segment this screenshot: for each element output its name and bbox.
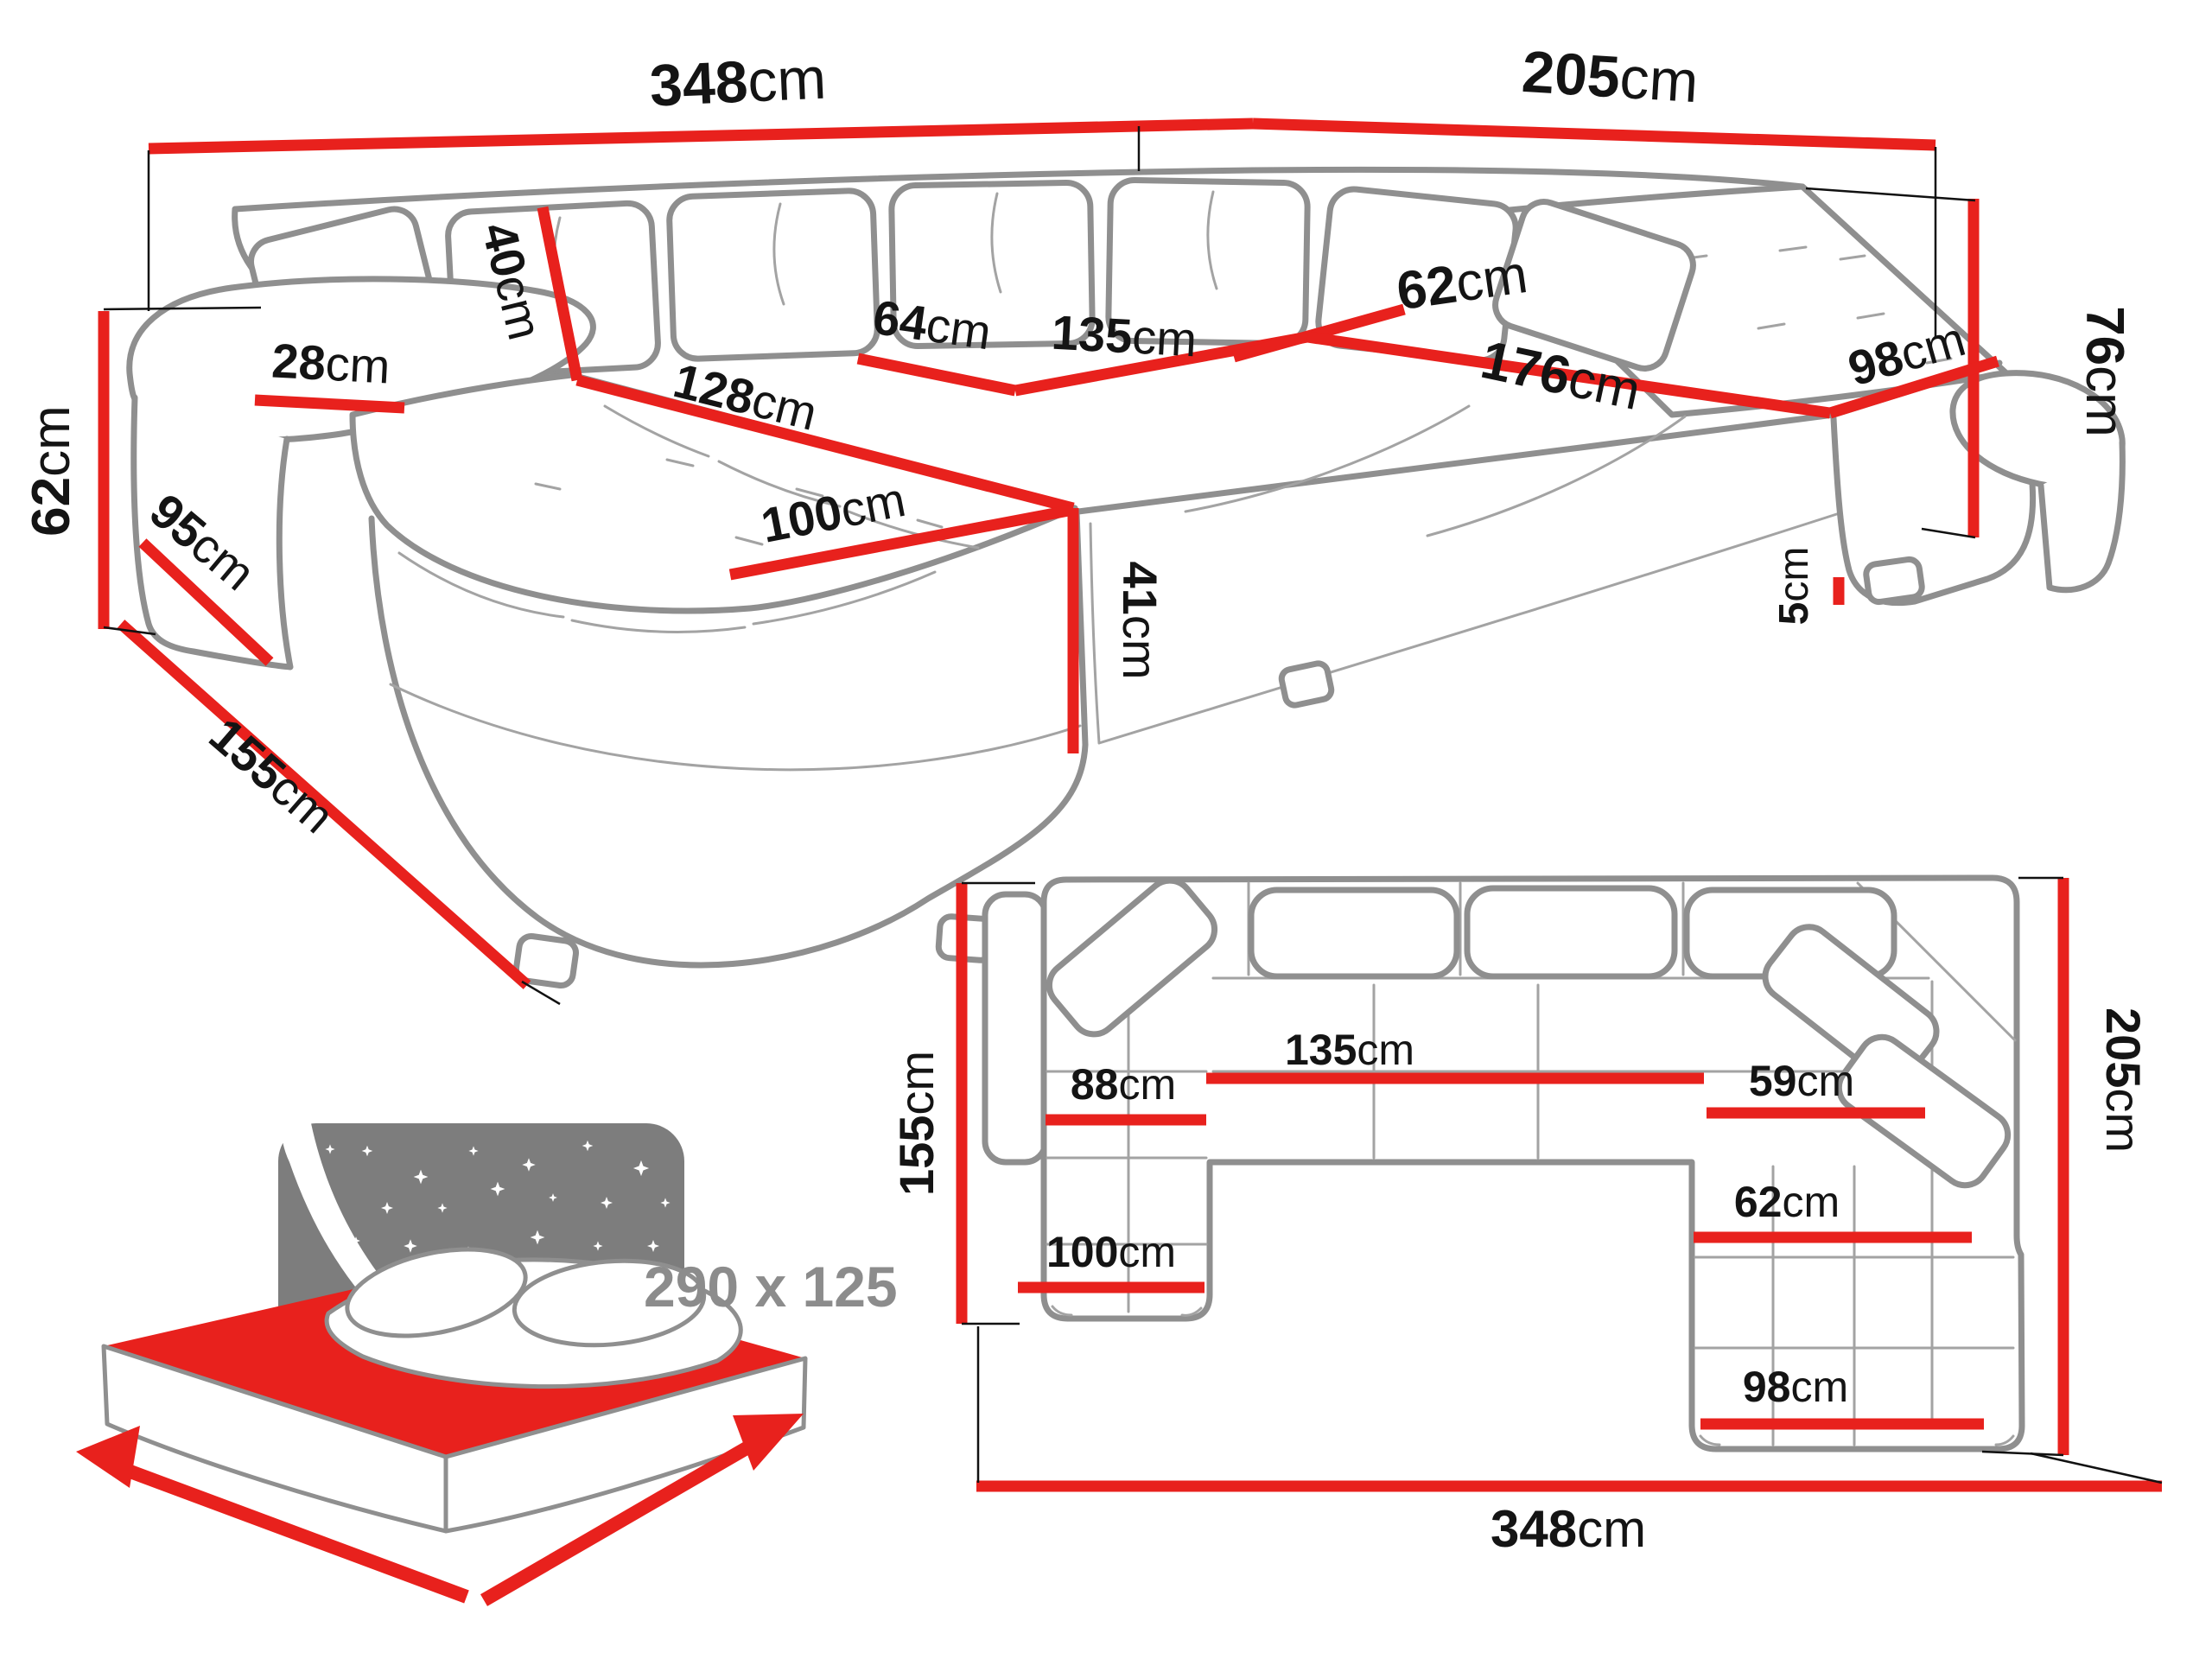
dim-arm-height-label: 62cm bbox=[22, 405, 81, 537]
dim-middle-seat-label: 135cm bbox=[1050, 305, 1198, 367]
dim-seat-height-label: 41cm bbox=[1113, 562, 1167, 680]
product-dimension-diagram: 348cm 205cm 76cm 62cm 28cm 95cm 155cm 40… bbox=[0, 0, 2212, 1659]
dim-armrest-width-label: 28cm bbox=[270, 333, 391, 393]
sleeping-size-label: 290 x 125 bbox=[644, 1255, 898, 1319]
plan-side-depth-label: 205cm bbox=[2096, 1007, 2151, 1153]
plan-view: 155cm 88cm 135cm 59cm 62cm 100cm 98cm 20… bbox=[889, 871, 2162, 1558]
dim-back-width-label: 348cm bbox=[648, 46, 827, 119]
sleeper-icon: 290 x 125 bbox=[76, 1123, 898, 1600]
plan-middle-seat-label: 135cm bbox=[1285, 1026, 1414, 1074]
dim-chaise-depth-label: 155cm bbox=[200, 707, 345, 843]
plan-chaise-depth-label: 155cm bbox=[889, 1051, 944, 1196]
dim-foot-height-label: 5cm bbox=[1771, 547, 1817, 626]
plan-right-width-label: 98cm bbox=[1743, 1363, 1848, 1411]
plan-total-width-label: 348cm bbox=[1491, 1500, 1646, 1558]
plan-chaise-seat-label: 88cm bbox=[1071, 1060, 1176, 1109]
plan-sketch bbox=[985, 871, 2022, 1449]
plan-corner-seat-label: 59cm bbox=[1749, 1057, 1854, 1105]
dim-back-height-label: 76cm bbox=[2075, 306, 2134, 437]
plan-right-seat-label: 62cm bbox=[1734, 1178, 1840, 1226]
plan-chaise-width-label: 100cm bbox=[1046, 1228, 1176, 1276]
dim-side-width-label: 205cm bbox=[1520, 39, 1700, 115]
perspective-view: 348cm 205cm 76cm 62cm 28cm 95cm 155cm 40… bbox=[22, 39, 2134, 1004]
